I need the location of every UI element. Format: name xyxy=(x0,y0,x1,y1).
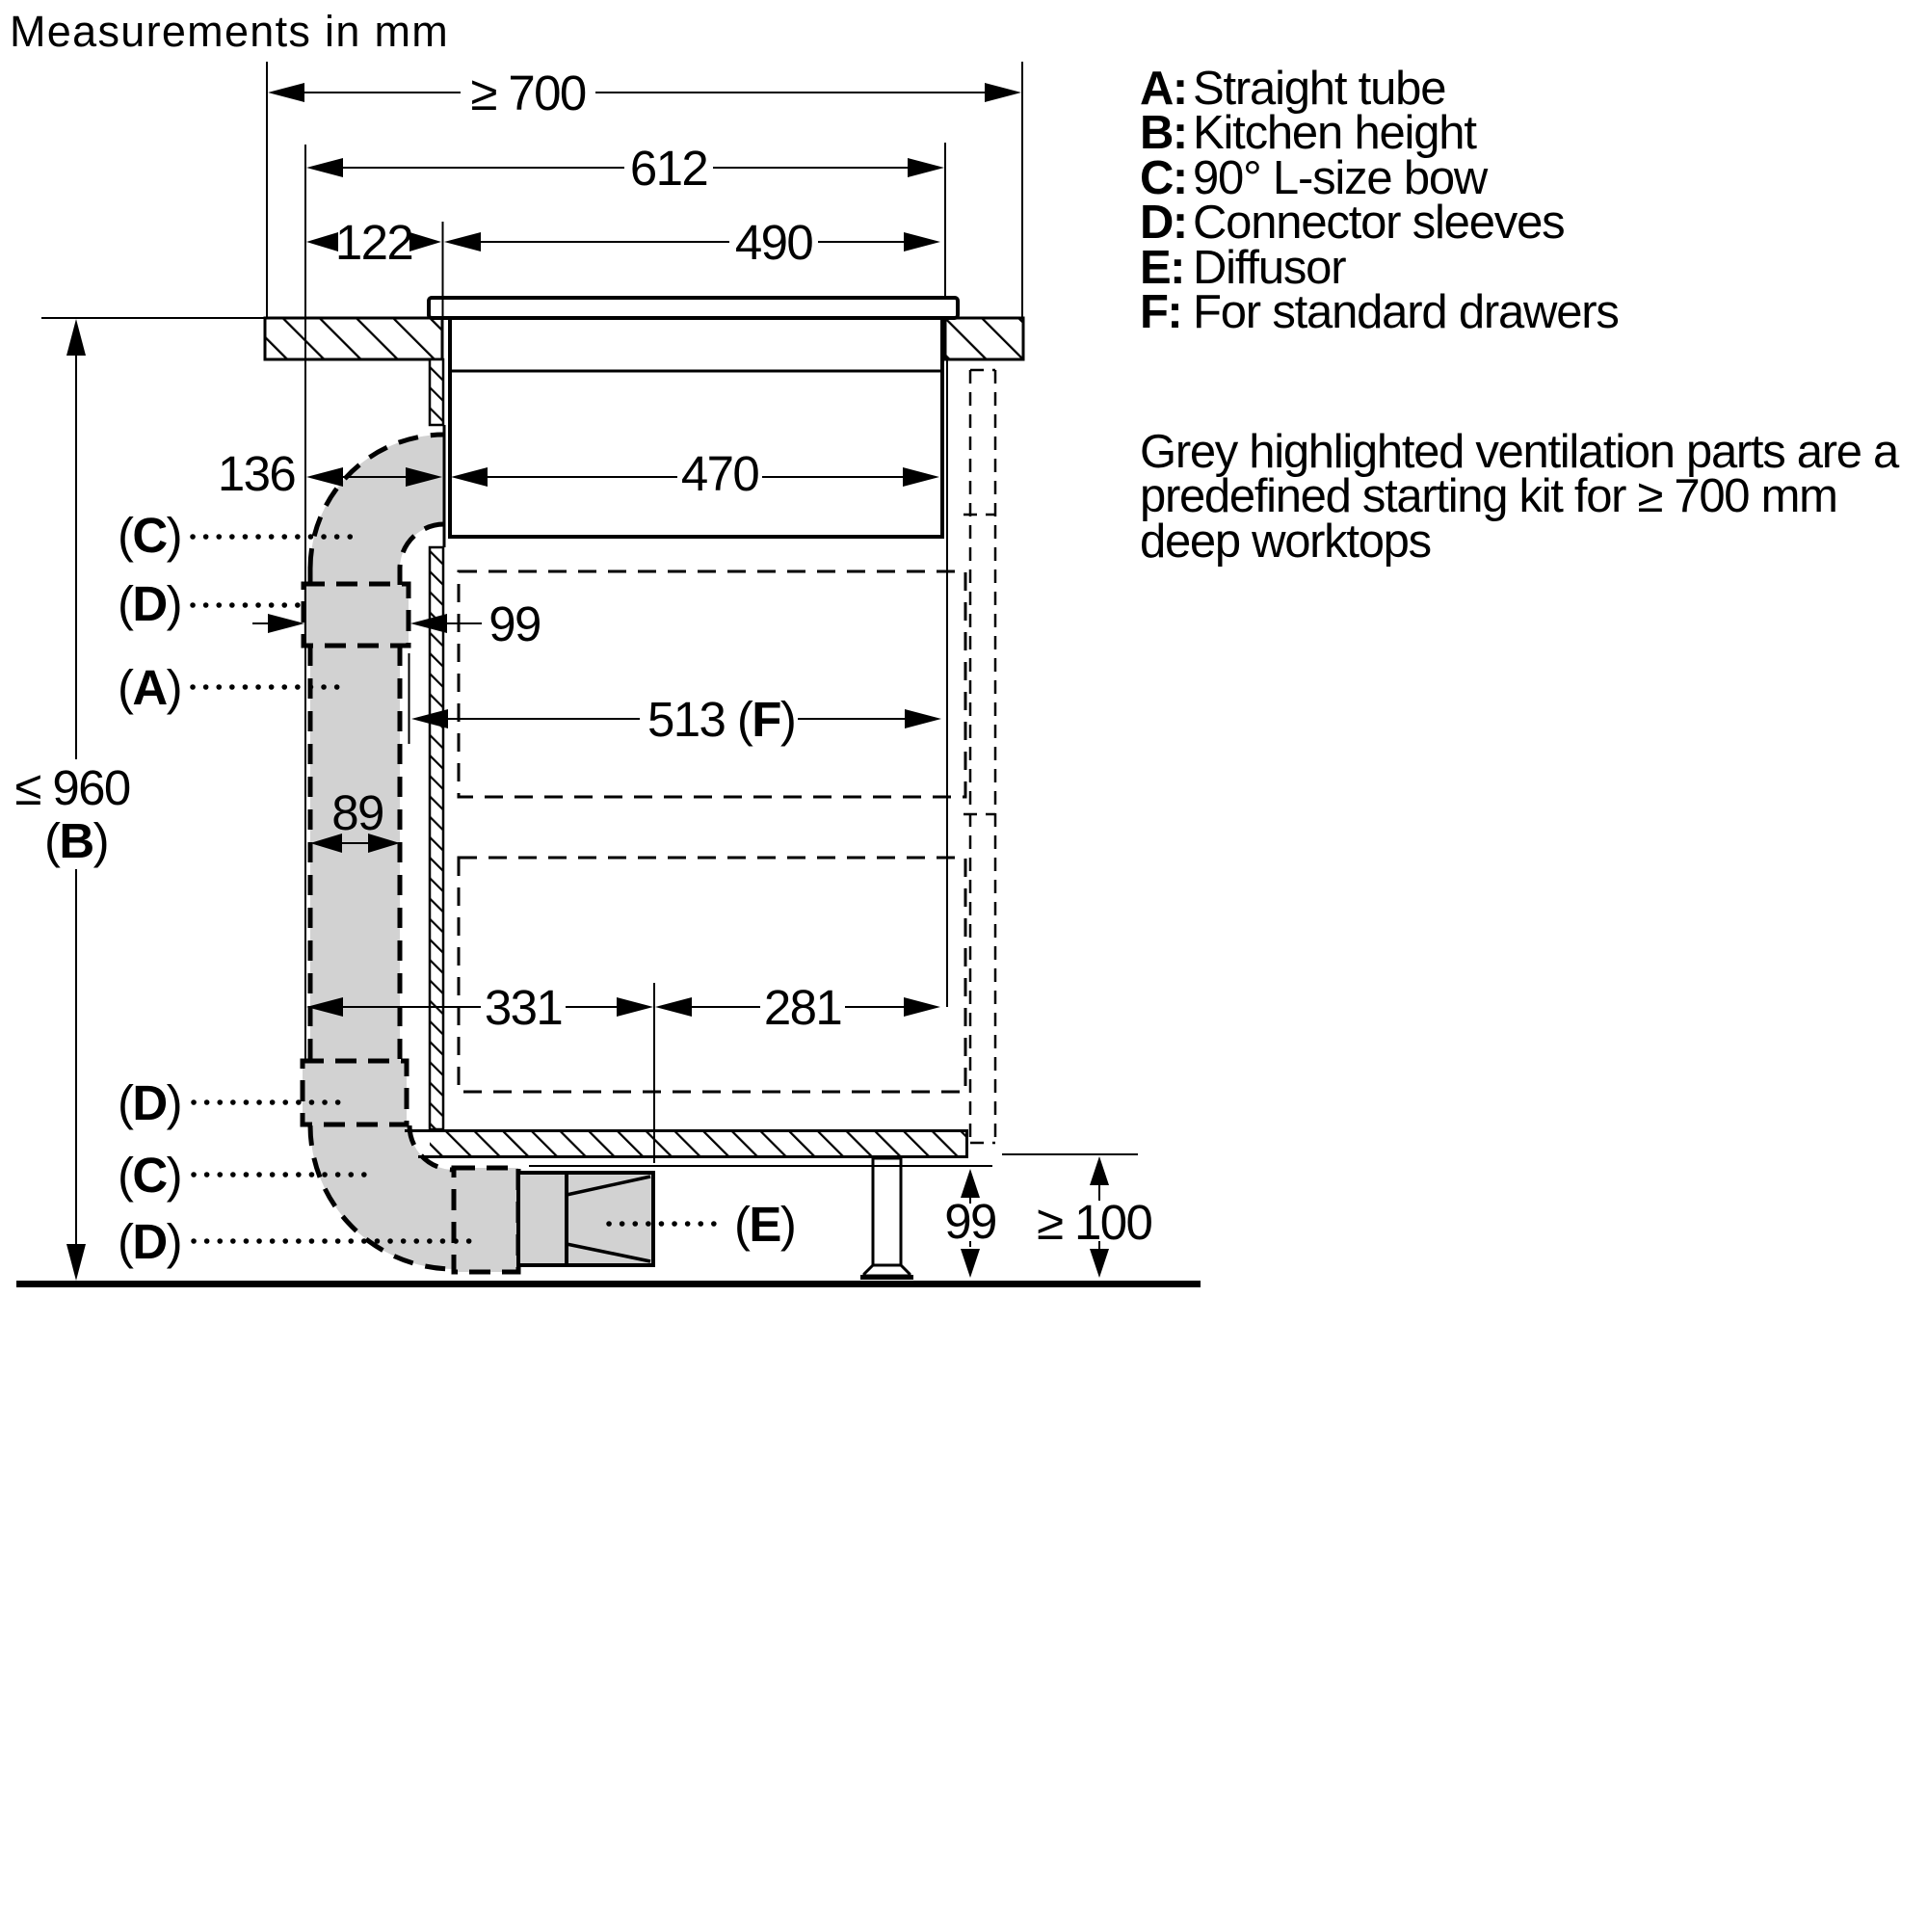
svg-text:Connector sleeves: Connector sleeves xyxy=(1193,197,1564,249)
svg-text:99: 99 xyxy=(944,1194,996,1249)
svg-text:490: 490 xyxy=(735,215,813,270)
svg-text:513 (F): 513 (F) xyxy=(647,692,795,747)
svg-text:(D): (D) xyxy=(118,1075,181,1130)
svg-text:612: 612 xyxy=(630,141,707,196)
svg-text:99: 99 xyxy=(488,596,541,651)
svg-text:≤ 960: ≤ 960 xyxy=(14,760,129,815)
svg-text:136: 136 xyxy=(218,446,296,501)
svg-text:predefined starting kit for ≥: predefined starting kit for ≥ 700 mm xyxy=(1140,470,1837,522)
svg-text:Measurements in mm: Measurements in mm xyxy=(10,7,449,56)
svg-text:281: 281 xyxy=(764,980,841,1035)
svg-text:(D): (D) xyxy=(118,576,181,631)
svg-text:≥ 700: ≥ 700 xyxy=(470,66,585,120)
svg-text:(D): (D) xyxy=(118,1214,181,1269)
svg-text:(C): (C) xyxy=(118,508,181,563)
svg-text:For standard drawers: For standard drawers xyxy=(1193,286,1619,338)
svg-text:89: 89 xyxy=(331,785,383,840)
svg-text:F:: F: xyxy=(1140,286,1181,338)
svg-text:331: 331 xyxy=(485,980,562,1035)
svg-text:122: 122 xyxy=(335,215,412,270)
svg-text:470: 470 xyxy=(681,446,759,501)
svg-text:(A): (A) xyxy=(118,660,181,715)
svg-text:(E): (E) xyxy=(734,1197,795,1252)
svg-text:D:: D: xyxy=(1140,197,1187,249)
svg-text:deep worktops: deep worktops xyxy=(1140,516,1431,568)
svg-text:Kitchen height: Kitchen height xyxy=(1193,107,1477,159)
svg-text:≥ 100: ≥ 100 xyxy=(1037,1195,1151,1250)
svg-text:(B): (B) xyxy=(44,813,108,868)
svg-text:(C): (C) xyxy=(118,1148,181,1203)
svg-text:B:: B: xyxy=(1140,107,1187,159)
